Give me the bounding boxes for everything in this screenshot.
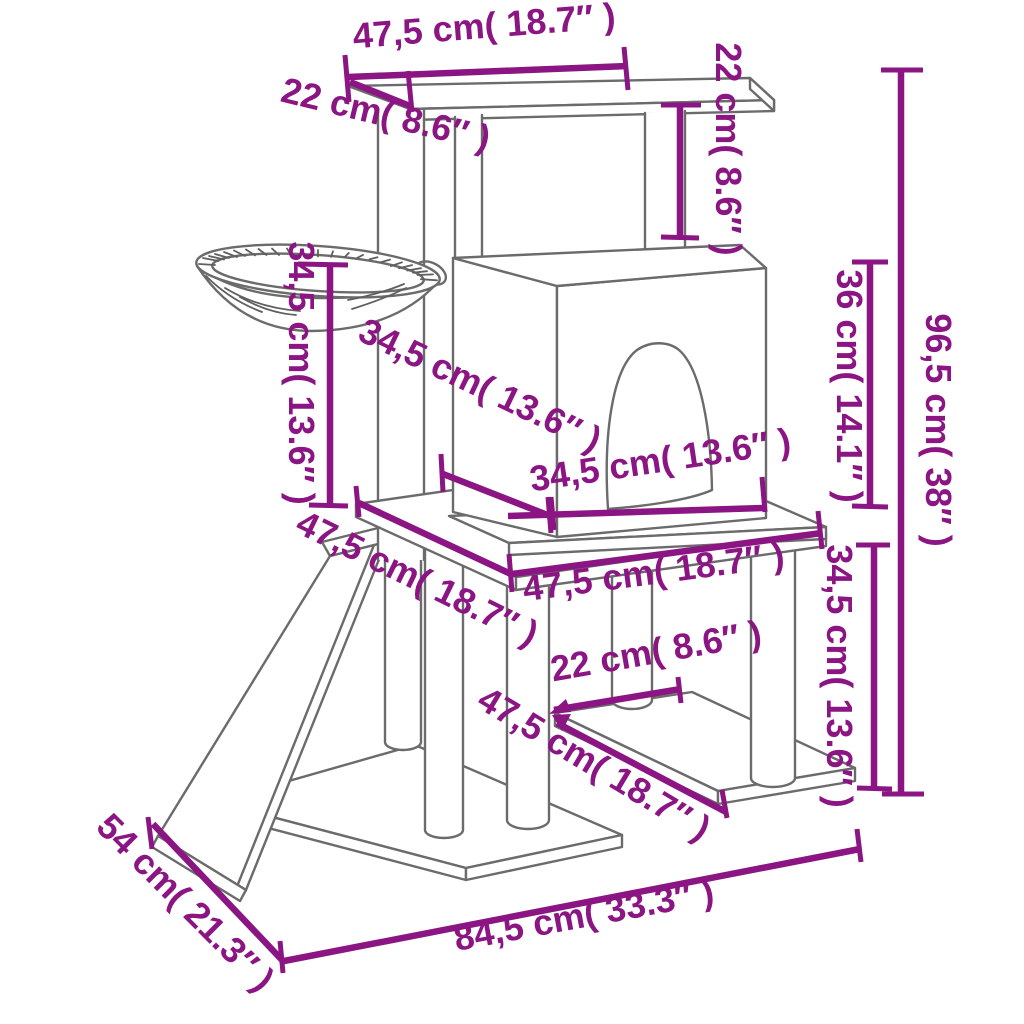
cat-tree-dimension-diagram: 47,5 cm( 18.7″ ) 22 cm( 8.6″ ) 22 cm( 8.…	[0, 0, 1024, 1024]
dimension-label-basket-to-platform: 34,5 cm( 13.6″ )	[281, 241, 322, 504]
dimension-label-base-width: 84,5 cm( 33.3″ )	[450, 871, 716, 959]
dimension-label-top-to-house-roof: 22 cm( 8.6″ )	[708, 42, 749, 255]
diagram-canvas: 47,5 cm( 18.7″ ) 22 cm( 8.6″ ) 22 cm( 8.…	[0, 0, 1024, 1024]
dimension-total-height: 96,5 cm( 38″ )	[881, 70, 959, 795]
dimension-label-top-platform-width: 47,5 cm( 18.7″ )	[351, 0, 617, 56]
dimension-lower-right-height: 34,5 cm( 13.6″ )	[819, 544, 892, 807]
dimension-label-total-height: 96,5 cm( 38″ )	[918, 313, 959, 546]
dimension-house-height: 36 cm( 14.1″ )	[829, 262, 888, 507]
dimension-label-house-height: 36 cm( 14.1″ )	[829, 269, 870, 502]
dimension-label-lower-right-height: 34,5 cm( 13.6″ )	[819, 544, 860, 807]
dimension-label-lower-shelf-width: 22 cm( 8.6″ )	[547, 612, 764, 689]
